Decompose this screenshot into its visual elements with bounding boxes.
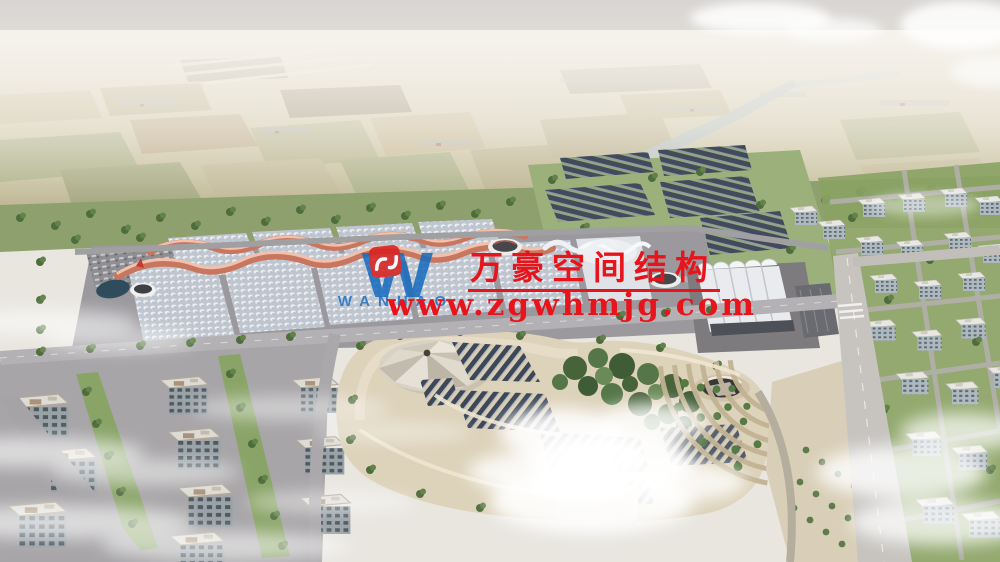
rendered-scene — [0, 0, 1000, 562]
aerial-rendering-canvas: W WANHAO 万豪空间结构 www.zgwhmjg.com — [0, 0, 1000, 562]
